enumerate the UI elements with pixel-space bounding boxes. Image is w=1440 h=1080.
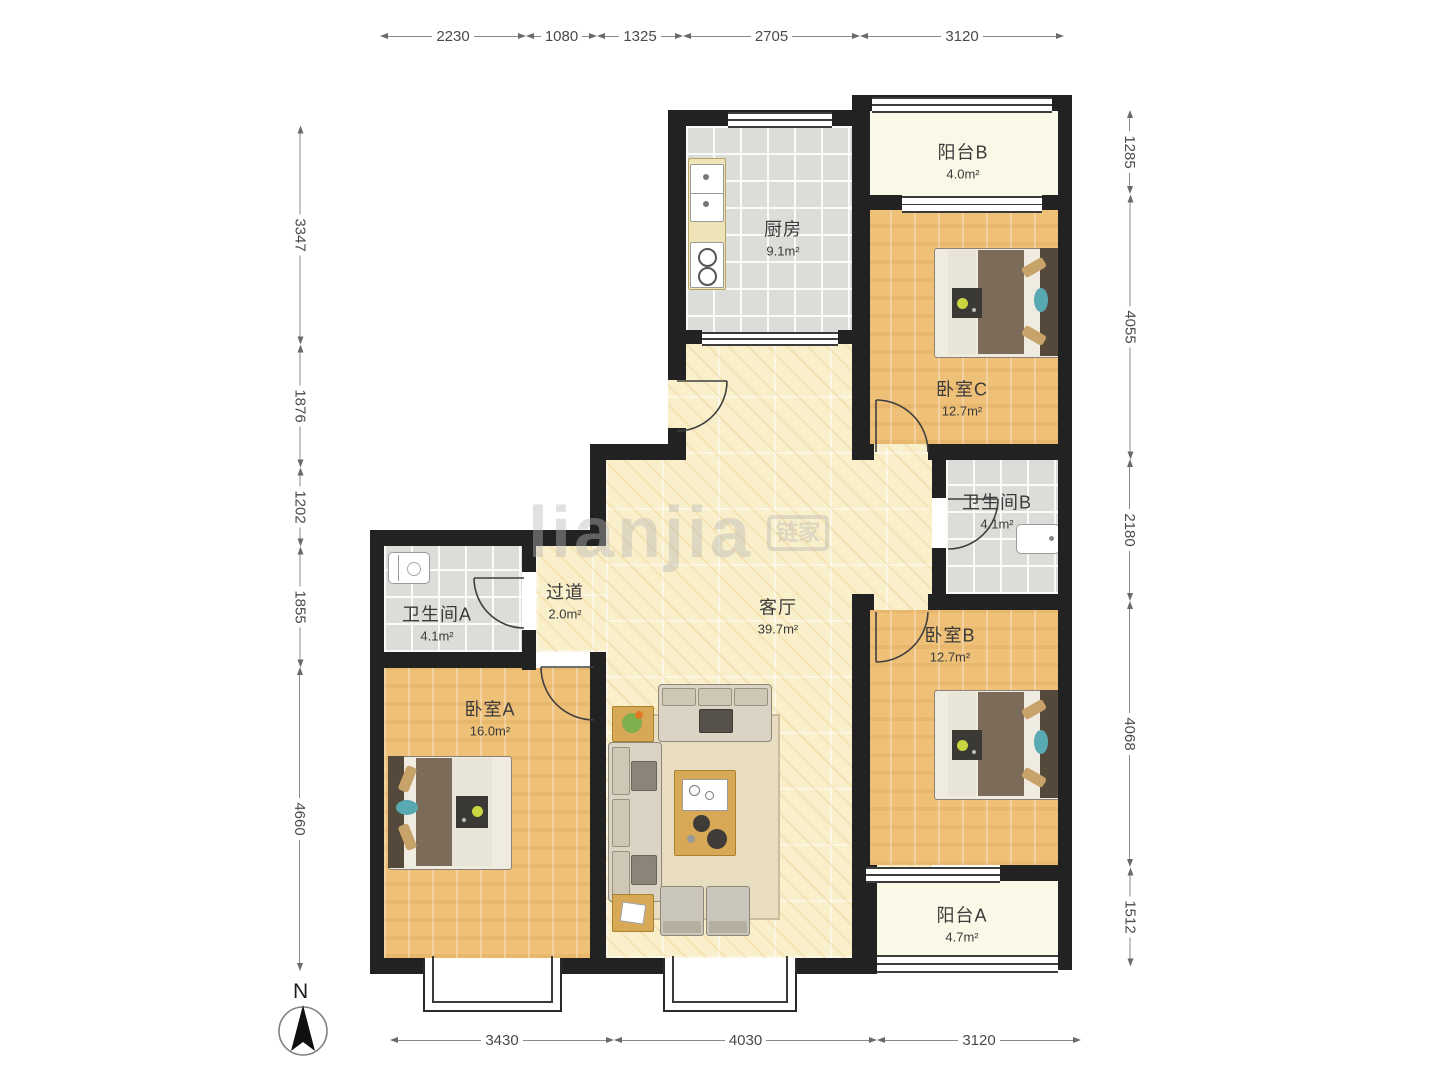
dimension-top-1: 1080 [526,28,597,44]
dimension-bottom-2: 3120 [877,1032,1081,1048]
compass-icon [279,1005,327,1055]
dimension-top-4: 3120 [860,28,1064,44]
dimension-left-4: 4660 [292,667,308,971]
floor-plan: lianjia 链家 阳台B4.0m² 厨房9.1m² 卧室C12.7m² 卫生… [0,0,1440,1080]
dimension-top-3: 2705 [683,28,860,44]
door-bedroom-a [541,667,594,720]
dimension-right-2: 2180 [1122,459,1138,601]
compass-north-label: N [293,980,308,1004]
dimension-right-3: 4068 [1122,601,1138,867]
dimension-top-2: 1325 [597,28,683,44]
dimension-bottom-1: 4030 [614,1032,877,1048]
label-bathroom-b: 卫生间B4.1m² [962,489,1032,532]
label-balcony-b: 阳台B4.0m² [937,139,988,182]
label-bedroom-a: 卧室A16.0m² [464,696,515,739]
dimension-right-4: 1512 [1123,868,1139,967]
door-bedroom-b [876,612,928,662]
dimension-top-0: 2230 [380,28,526,44]
dimension-left-1: 1876 [293,345,309,468]
label-hallway: 过道2.0m² [546,579,584,622]
label-bedroom-b: 卧室B12.7m² [924,622,975,665]
label-bathroom-a: 卫生间A4.1m² [402,601,472,644]
label-bedroom-c: 卧室C12.7m² [936,376,988,419]
label-living: 客厅39.7m² [758,594,798,637]
dimension-left-2: 1202 [293,468,309,547]
dimension-right-1: 4055 [1123,195,1139,460]
dimension-left-0: 3347 [293,126,309,345]
door-bedroom-c [876,400,928,452]
door-entrance [677,381,727,431]
label-kitchen: 厨房9.1m² [764,216,802,259]
door-bathroom-a [474,578,524,628]
dimension-bottom-0: 3430 [390,1032,614,1048]
door-arcs [0,0,1440,1080]
label-balcony-a: 阳台A4.7m² [936,902,987,945]
dimension-right-0: 1285 [1122,110,1138,194]
dimension-left-3: 1855 [293,547,309,668]
